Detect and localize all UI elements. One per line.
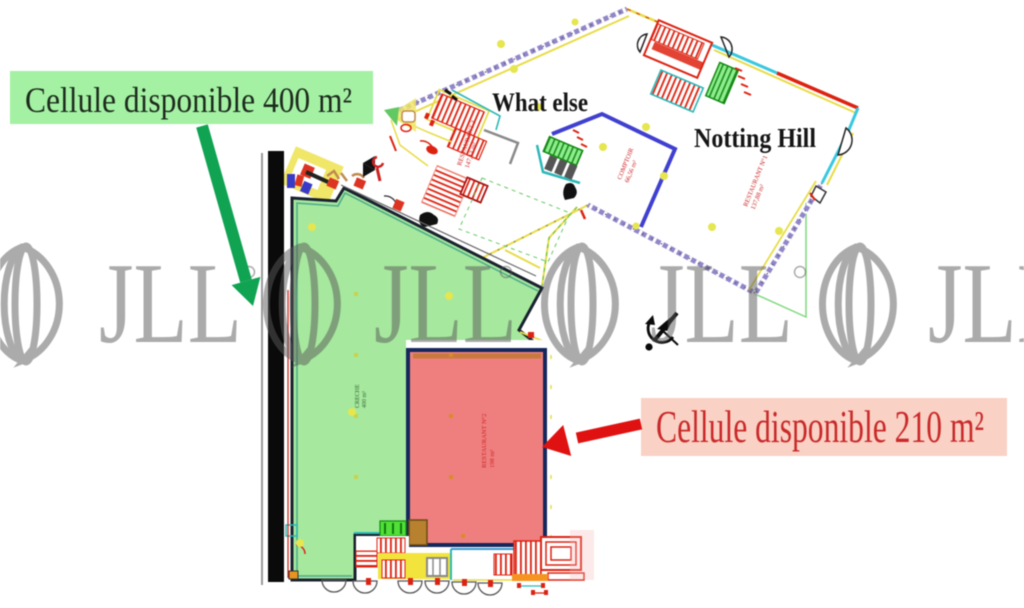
svg-text:RESTAURANT N°1137,88 m²: RESTAURANT N°1137,88 m²: [742, 155, 776, 211]
svg-text:JLL: JLL: [928, 240, 1024, 368]
svg-text:Cellule disponible 400 m²: Cellule disponible 400 m²: [25, 80, 352, 120]
svg-text:JLL: JLL: [374, 240, 517, 368]
svg-text:JLL: JLL: [99, 240, 242, 368]
svg-text:Cellule disponible 210 m²: Cellule disponible 210 m²: [656, 401, 984, 452]
svg-text:What else: What else: [492, 88, 588, 117]
svg-text:Notting Hill: Notting Hill: [694, 123, 816, 153]
svg-text:COMPTOIR66,56 m²: COMPTOIR66,56 m²: [616, 146, 643, 183]
svg-text:JLL: JLL: [650, 240, 793, 368]
